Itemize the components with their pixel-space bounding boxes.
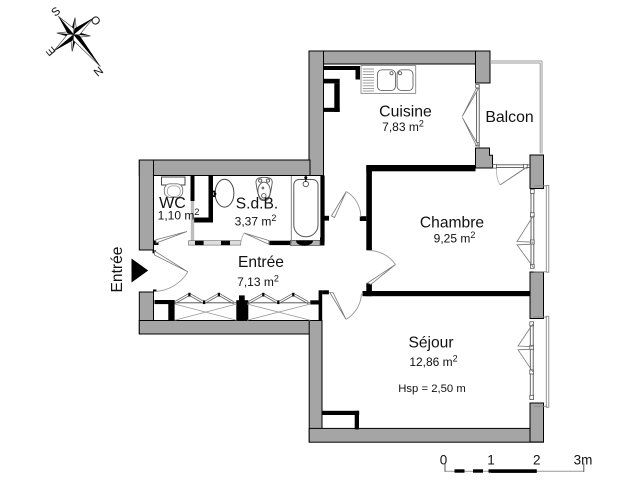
svg-text:Entrée: Entrée (109, 247, 126, 293)
svg-text:1: 1 (487, 453, 495, 468)
svg-text:Cuisine: Cuisine (379, 103, 432, 120)
svg-text:S.d.B.: S.d.B. (236, 196, 278, 213)
svg-text:Chambre: Chambre (420, 214, 484, 231)
svg-text:2: 2 (533, 453, 541, 468)
svg-text:3m: 3m (574, 453, 593, 468)
svg-text:Séjour: Séjour (408, 335, 453, 352)
svg-text:Balcon: Balcon (485, 109, 533, 126)
svg-text:Entrée: Entrée (238, 254, 284, 271)
svg-text:7,13 m2: 7,13 m2 (237, 274, 279, 290)
svg-text:7,83 m2: 7,83 m2 (382, 119, 424, 135)
svg-text:12,86 m2: 12,86 m2 (409, 353, 457, 369)
svg-text:9,25 m2: 9,25 m2 (434, 230, 476, 246)
svg-text:3,37 m2: 3,37 m2 (235, 213, 277, 229)
svg-text:Hsp = 2,50 m: Hsp = 2,50 m (398, 383, 466, 395)
svg-text:1,10 m2: 1,10 m2 (158, 207, 200, 223)
svg-text:0: 0 (440, 453, 448, 468)
